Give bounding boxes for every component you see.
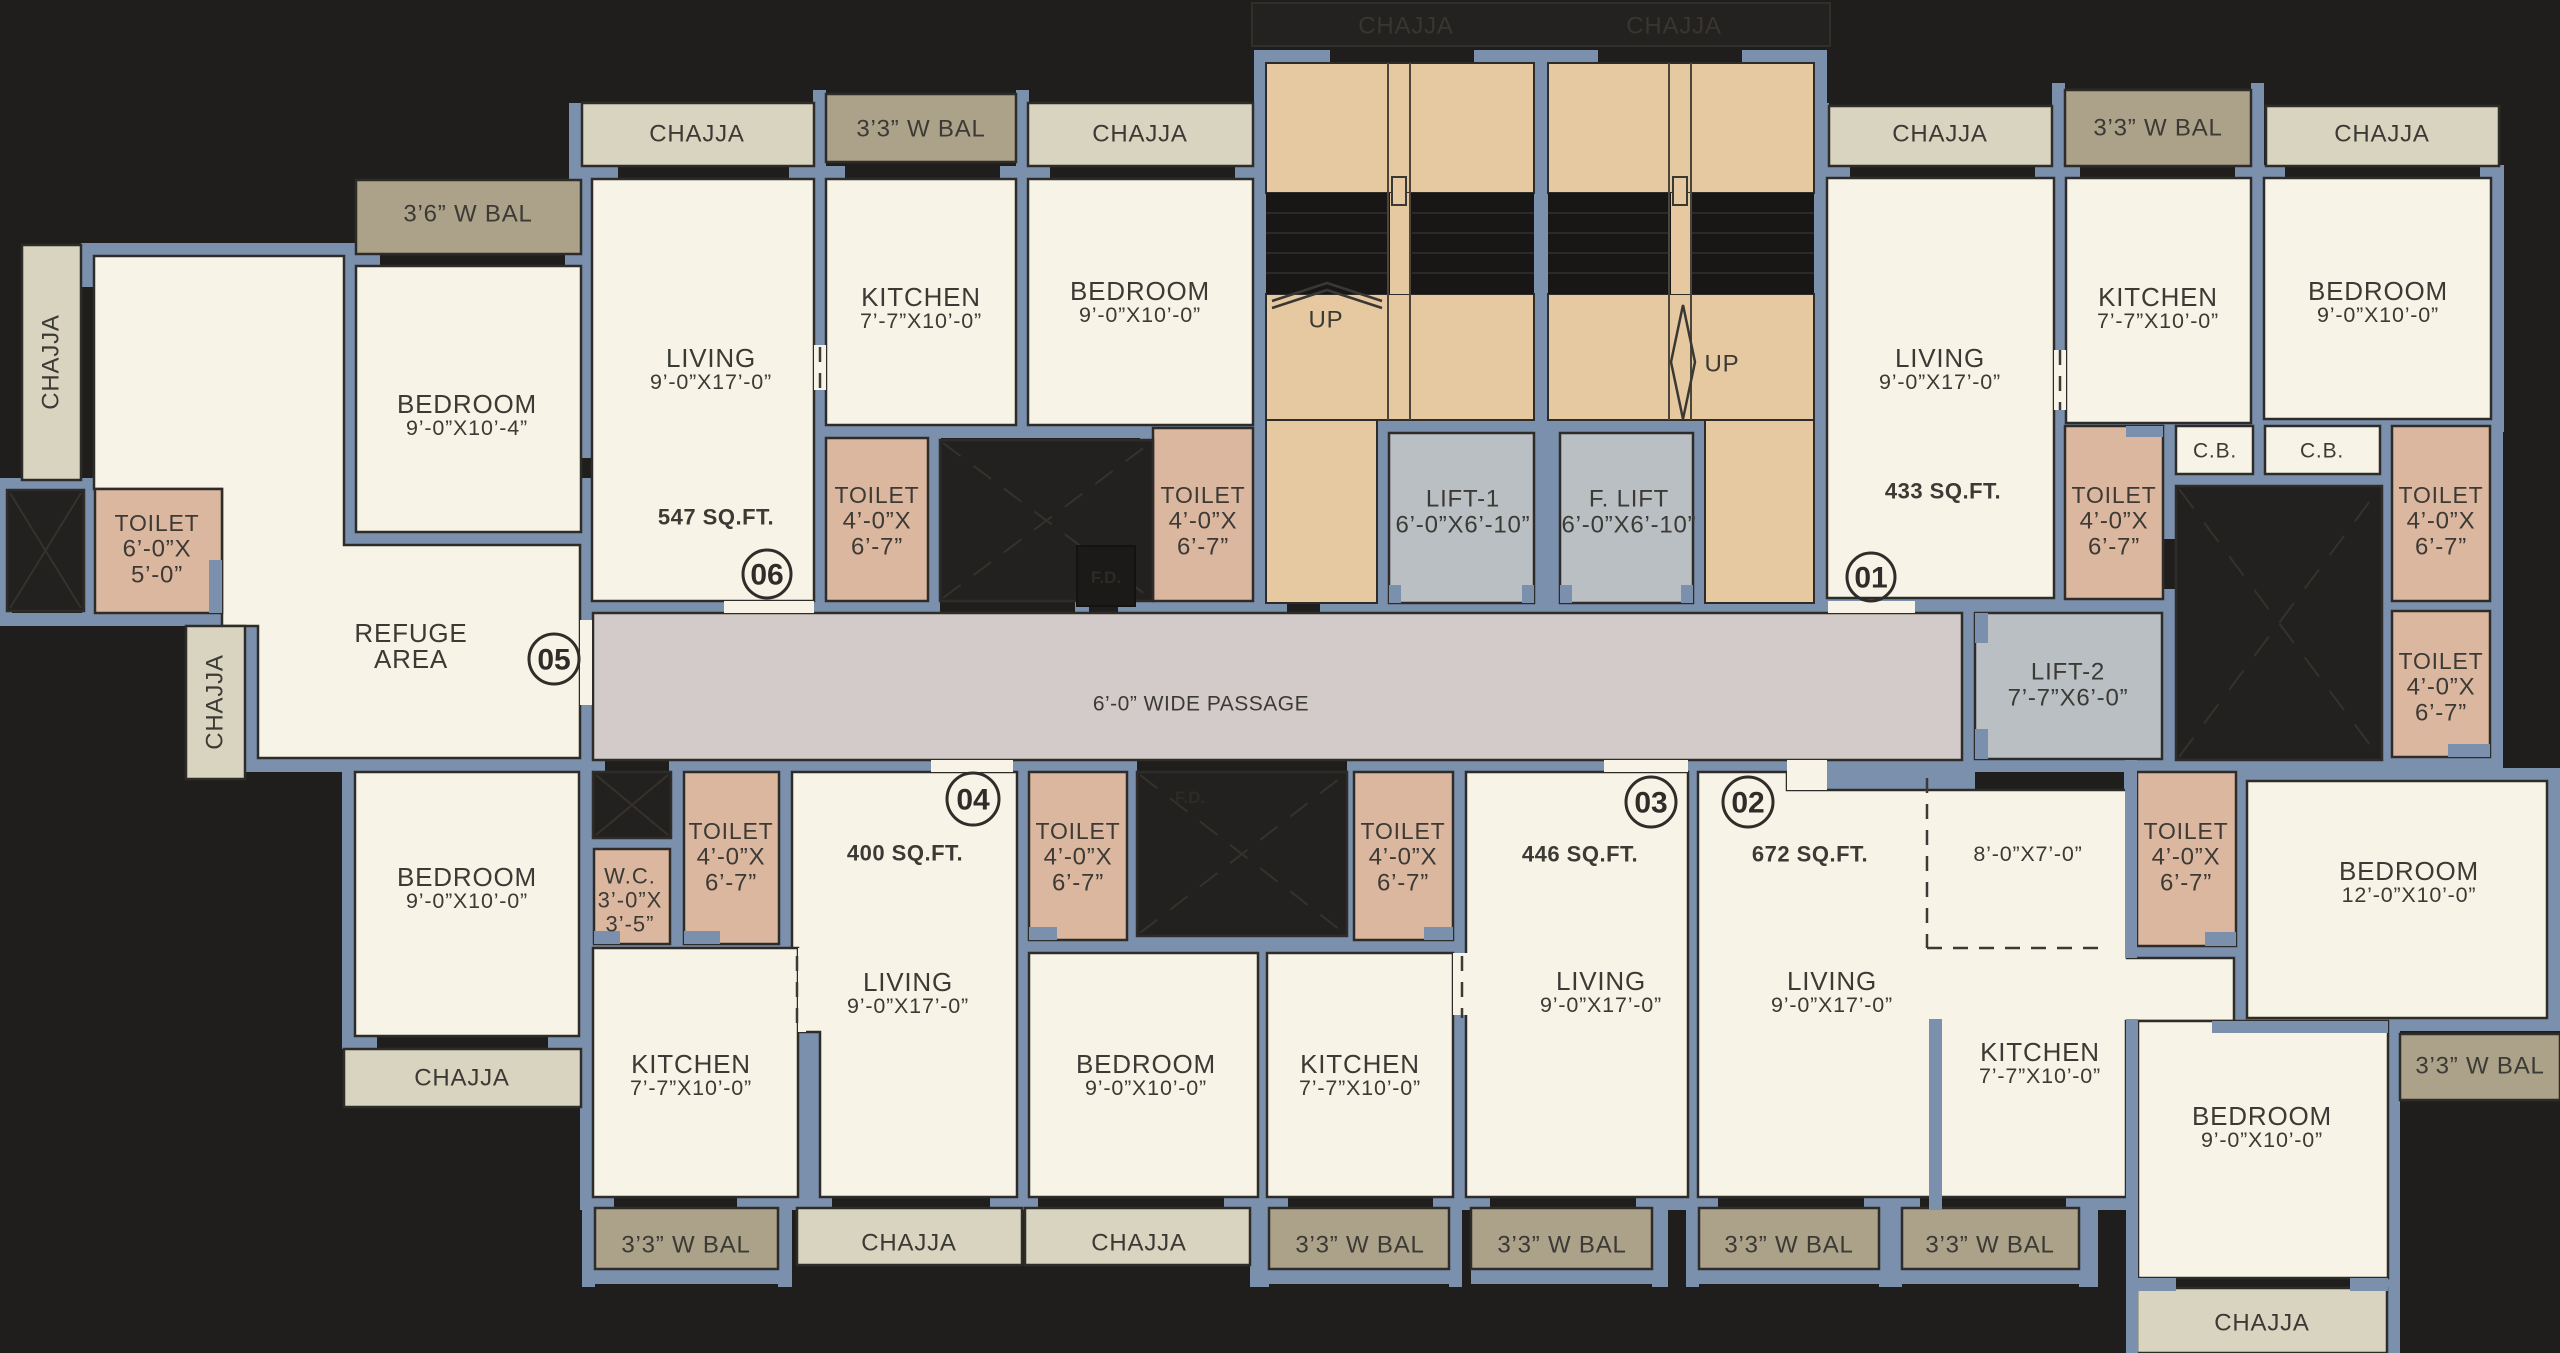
svg-text:CHAJJA: CHAJJA [1892,121,1987,148]
svg-text:5’-0”: 5’-0” [131,562,183,589]
svg-text:BEDROOM: BEDROOM [397,389,537,419]
svg-text:6’-7”: 6’-7” [2415,534,2467,561]
svg-text:6’-0”X: 6’-0”X [123,536,192,563]
svg-text:4’-0”X: 4’-0”X [1369,844,1438,871]
svg-text:BEDROOM: BEDROOM [1076,1049,1216,1079]
svg-text:9’-0”X10’-0”: 9’-0”X10’-0” [1085,1076,1207,1100]
svg-text:F. LIFT: F. LIFT [1589,486,1669,513]
svg-text:04: 04 [956,784,990,817]
svg-text:4’-0”X: 4’-0”X [697,844,766,871]
svg-text:8’-0”X7’-0”: 8’-0”X7’-0” [1973,842,2082,866]
svg-text:547 SQ.FT.: 547 SQ.FT. [658,505,774,530]
svg-text:3’3” W BAL: 3’3” W BAL [1295,1232,1424,1259]
svg-text:6’-7”: 6’-7” [2415,700,2467,727]
svg-text:03: 03 [1634,787,1667,820]
svg-text:3’6” W BAL: 3’6” W BAL [403,201,532,228]
svg-text:6’-0”X6’-10”: 6’-0”X6’-10” [1396,512,1531,539]
svg-text:6’-7”: 6’-7” [851,534,903,561]
svg-text:02: 02 [1731,787,1764,820]
svg-text:KITCHEN: KITCHEN [861,282,981,312]
svg-text:W.C.: W.C. [604,864,656,889]
svg-text:3’3” W BAL: 3’3” W BAL [1497,1232,1626,1259]
svg-text:7’-7”X10’-0”: 7’-7”X10’-0” [630,1076,752,1100]
svg-text:05: 05 [537,644,570,677]
svg-text:TOILET: TOILET [835,482,920,508]
svg-text:CHAJJA: CHAJJA [649,121,744,148]
svg-text:UP: UP [1309,307,1344,334]
svg-text:LIVING: LIVING [1787,966,1877,996]
svg-text:C.B.: C.B. [2193,440,2237,463]
svg-text:9’-0”X10’-0”: 9’-0”X10’-0” [1079,303,1201,327]
svg-text:CHAJJA: CHAJJA [861,1230,956,1257]
svg-text:7’-7”X6’-0”: 7’-7”X6’-0” [2008,685,2129,712]
svg-text:7’-7”X10’-0”: 7’-7”X10’-0” [1299,1076,1421,1100]
svg-text:F.D.: F.D. [1091,568,1121,587]
svg-text:9’-0”X10’-0”: 9’-0”X10’-0” [2317,303,2439,327]
svg-text:6’-0”X6’-10”: 6’-0”X6’-10” [1562,512,1697,539]
svg-text:BEDROOM: BEDROOM [1070,276,1210,306]
svg-text:9’-0”X17’-0”: 9’-0”X17’-0” [1879,370,2001,394]
svg-text:6’-7”: 6’-7” [2160,870,2212,897]
svg-text:4’-0”X: 4’-0”X [2407,508,2476,535]
svg-text:CHAJJA: CHAJJA [414,1065,509,1092]
svg-text:6’-0” WIDE PASSAGE: 6’-0” WIDE PASSAGE [1093,693,1309,716]
svg-text:6’-7”: 6’-7” [1377,870,1429,897]
svg-text:BEDROOM: BEDROOM [2192,1101,2332,1131]
svg-text:3’-0”X: 3’-0”X [598,888,663,913]
svg-text:7’-7”X10’-0”: 7’-7”X10’-0” [860,309,982,333]
svg-text:3’3” W BAL: 3’3” W BAL [2093,115,2222,142]
svg-text:6’-7”: 6’-7” [1052,870,1104,897]
svg-text:CHAJJA: CHAJJA [2214,1310,2309,1337]
svg-text:TOILET: TOILET [689,818,774,844]
svg-text:9’-0”X10’-0”: 9’-0”X10’-0” [2201,1128,2323,1152]
svg-text:BEDROOM: BEDROOM [2339,856,2479,886]
svg-text:TOILET: TOILET [2072,482,2157,508]
svg-text:3’3” W BAL: 3’3” W BAL [1925,1232,2054,1259]
svg-text:BEDROOM: BEDROOM [2308,276,2448,306]
svg-text:TOILET: TOILET [1161,482,1246,508]
svg-text:4’-0”X: 4’-0”X [2152,844,2221,871]
svg-text:KITCHEN: KITCHEN [2098,282,2218,312]
svg-text:KITCHEN: KITCHEN [1300,1049,1420,1079]
svg-text:CHAJJA: CHAJJA [38,314,65,409]
svg-text:9’-0”X10’-4”: 9’-0”X10’-4” [406,416,528,440]
svg-text:LIFT-2: LIFT-2 [2031,659,2105,686]
svg-text:KITCHEN: KITCHEN [631,1049,751,1079]
svg-text:CHAJJA: CHAJJA [1091,1230,1186,1257]
svg-text:TOILET: TOILET [115,510,200,536]
svg-text:CHAJJA: CHAJJA [2334,121,2429,148]
svg-text:AREA: AREA [374,644,448,674]
svg-text:TOILET: TOILET [2399,648,2484,674]
svg-text:TOILET: TOILET [2144,818,2229,844]
svg-text:LIVING: LIVING [666,343,756,373]
svg-text:LIVING: LIVING [1556,966,1646,996]
svg-text:C.B.: C.B. [2300,440,2344,463]
svg-text:4’-0”X: 4’-0”X [2080,508,2149,535]
svg-text:CHAJJA: CHAJJA [1626,13,1721,40]
svg-text:4’-0”X: 4’-0”X [1044,844,1113,871]
svg-text:672 SQ.FT.: 672 SQ.FT. [1752,842,1868,867]
svg-text:3’3” W BAL: 3’3” W BAL [621,1232,750,1259]
svg-text:CHAJJA: CHAJJA [1092,121,1187,148]
svg-text:01: 01 [1854,562,1887,595]
svg-text:CHAJJA: CHAJJA [1358,13,1453,40]
svg-text:9’-0”X17’-0”: 9’-0”X17’-0” [650,370,772,394]
svg-text:9’-0”X17’-0”: 9’-0”X17’-0” [847,994,969,1018]
svg-text:7’-7”X10’-0”: 7’-7”X10’-0” [1979,1064,2101,1088]
svg-text:UP: UP [1705,351,1740,378]
svg-text:CHAJJA: CHAJJA [202,654,229,749]
svg-text:06: 06 [750,559,783,592]
svg-text:LIVING: LIVING [1895,343,1985,373]
svg-text:3’-5”: 3’-5” [605,912,654,937]
svg-text:3’3” W BAL: 3’3” W BAL [2415,1053,2544,1080]
svg-text:TOILET: TOILET [1036,818,1121,844]
svg-text:3’3” W BAL: 3’3” W BAL [856,116,985,143]
svg-text:4’-0”X: 4’-0”X [1169,508,1238,535]
svg-text:LIVING: LIVING [863,967,953,997]
svg-text:9’-0”X17’-0”: 9’-0”X17’-0” [1771,993,1893,1017]
svg-text:4’-0”X: 4’-0”X [843,508,912,535]
svg-text:433 SQ.FT.: 433 SQ.FT. [1885,479,2001,504]
svg-text:400 SQ.FT.: 400 SQ.FT. [847,841,963,866]
svg-text:12’-0”X10’-0”: 12’-0”X10’-0” [2342,883,2477,907]
svg-text:6’-7”: 6’-7” [705,870,757,897]
svg-text:3’3” W BAL: 3’3” W BAL [1724,1232,1853,1259]
svg-text:446 SQ.FT.: 446 SQ.FT. [1522,842,1638,867]
svg-text:TOILET: TOILET [2399,482,2484,508]
svg-text:9’-0”X17’-0”: 9’-0”X17’-0” [1540,993,1662,1017]
svg-text:KITCHEN: KITCHEN [1980,1037,2100,1067]
svg-text:TOILET: TOILET [1361,818,1446,844]
svg-text:BEDROOM: BEDROOM [397,862,537,892]
svg-text:9’-0”X10’-0”: 9’-0”X10’-0” [406,889,528,913]
svg-text:6’-7”: 6’-7” [2088,534,2140,561]
svg-text:F.D.: F.D. [1175,788,1205,807]
svg-text:6’-7”: 6’-7” [1177,534,1229,561]
svg-text:7’-7”X10’-0”: 7’-7”X10’-0” [2097,309,2219,333]
svg-text:4’-0”X: 4’-0”X [2407,674,2476,701]
svg-text:LIFT-1: LIFT-1 [1426,486,1500,513]
